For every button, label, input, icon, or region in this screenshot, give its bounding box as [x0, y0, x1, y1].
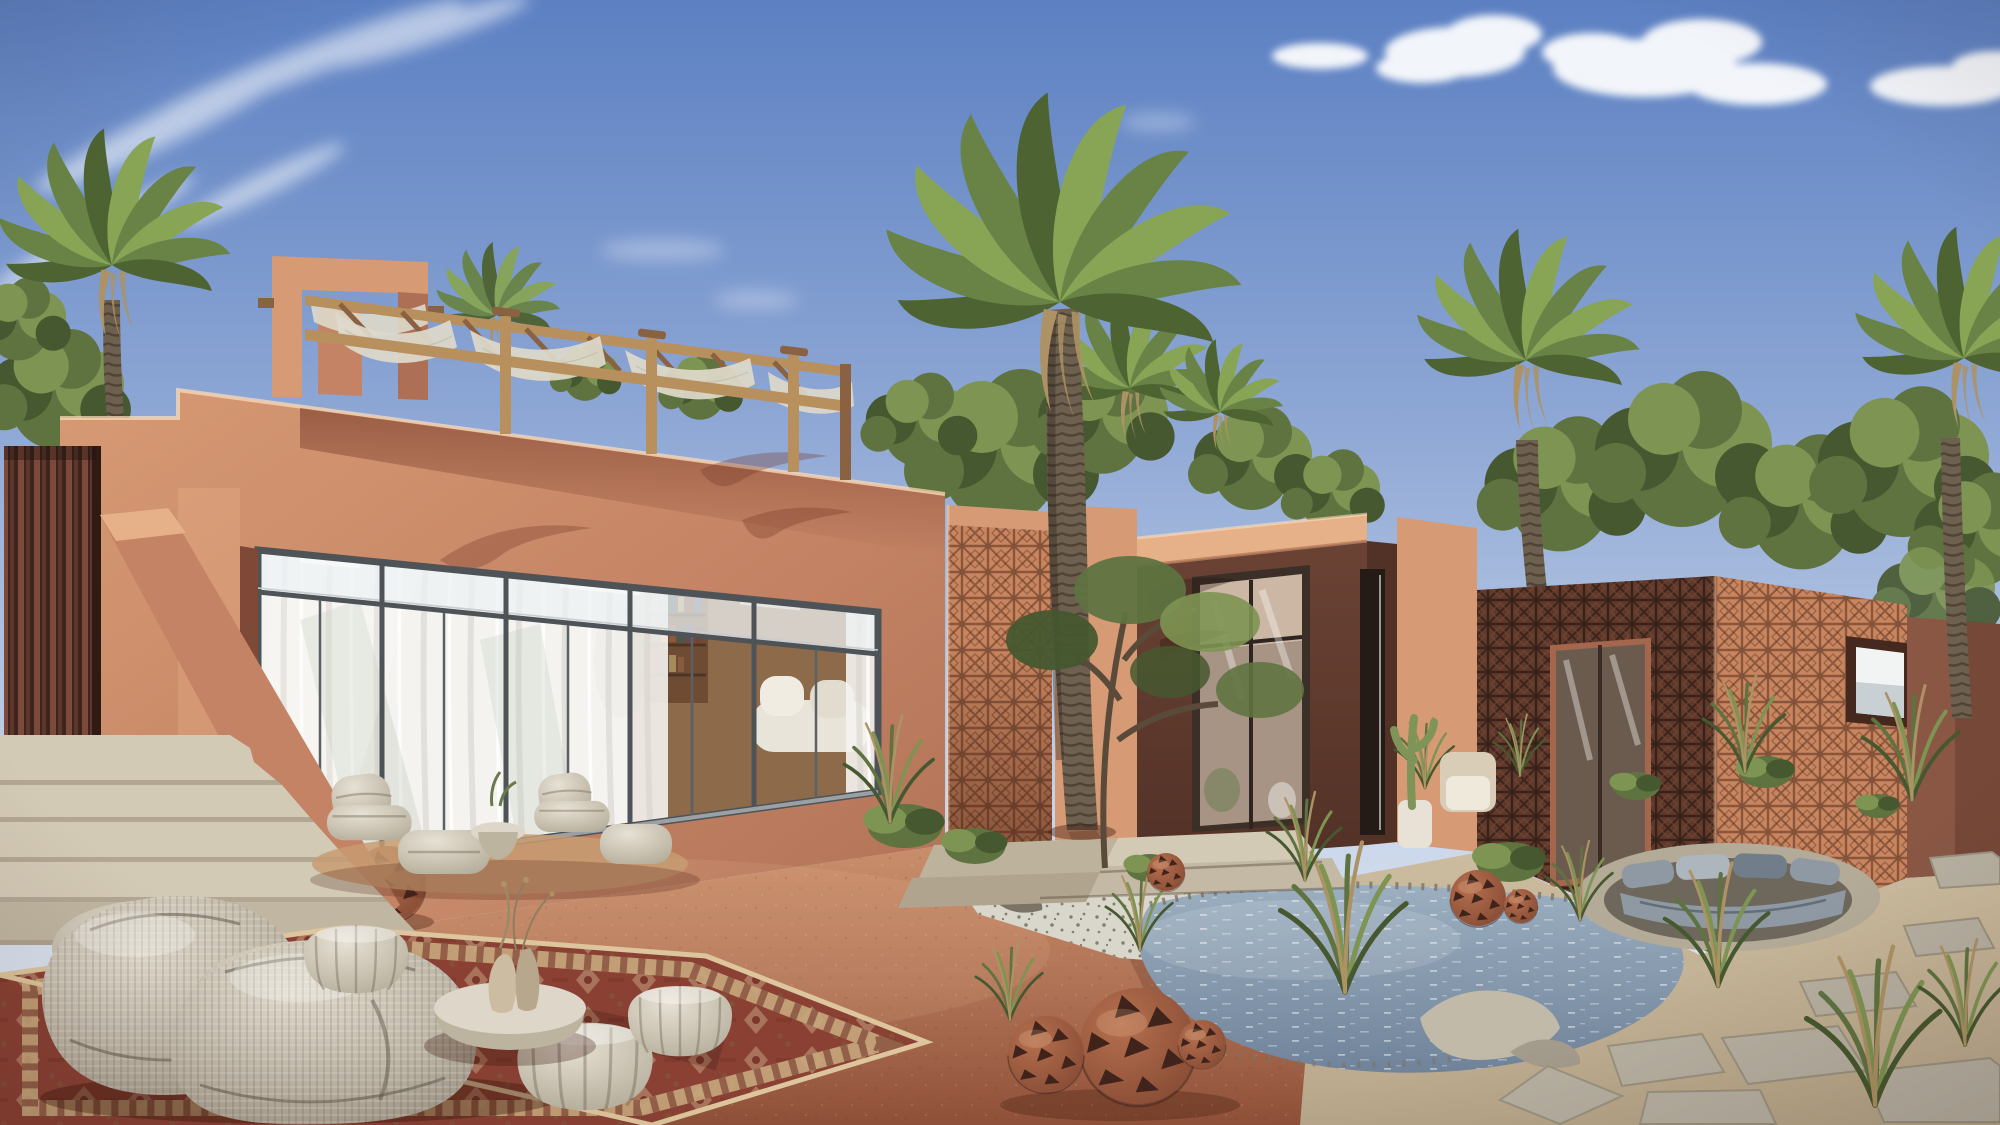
architectural-rendering	[0, 0, 2000, 1125]
vignette	[0, 0, 2000, 1125]
